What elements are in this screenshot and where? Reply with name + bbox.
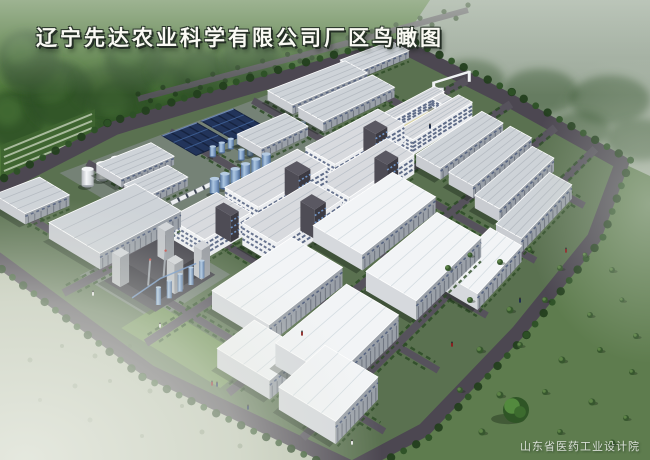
perimeter-tree (155, 103, 162, 110)
perimeter-tree (302, 58, 310, 66)
perimeter-tree (167, 98, 175, 106)
tank-top (210, 145, 216, 147)
perimeter-tree (219, 82, 227, 90)
page-title: 辽宁先达农业科学有限公司厂区鸟瞰图 (36, 22, 444, 52)
perimeter-tree (474, 382, 482, 390)
perimeter-tree (233, 78, 240, 85)
perimeter-tree (317, 55, 324, 62)
perimeter-tree (274, 66, 282, 74)
haze-right (400, 60, 650, 380)
tank-top (228, 138, 234, 140)
perimeter-tree (91, 127, 98, 134)
perimeter-tree (77, 133, 85, 141)
perimeter-tree (261, 70, 268, 77)
birdseye-rendering: 辽宁先达农业科学有限公司厂区鸟瞰图 山东省医药工业设计院 (0, 0, 650, 460)
fog-bottom-left (0, 150, 420, 460)
perimeter-tree (142, 107, 150, 115)
roadside-tree (148, 98, 153, 103)
perimeter-tree (445, 414, 452, 421)
perimeter-tree (425, 434, 432, 441)
tank-top (219, 141, 225, 143)
perimeter-tree (130, 111, 137, 118)
perimeter-tree (116, 115, 124, 123)
perimeter-tree (246, 74, 254, 82)
designer-watermark: 山东省医药工业设计院 (520, 438, 640, 454)
perimeter-tree (289, 63, 296, 70)
perimeter-tree (181, 95, 188, 102)
perimeter-tree (434, 423, 442, 431)
perimeter-tree (65, 140, 72, 147)
perimeter-tree (193, 90, 201, 98)
perimeter-tree (454, 403, 462, 411)
perimeter-tree (207, 87, 214, 94)
perimeter-tree (104, 120, 111, 127)
perimeter-tree (465, 393, 472, 400)
rendering-canvas (0, 0, 650, 460)
